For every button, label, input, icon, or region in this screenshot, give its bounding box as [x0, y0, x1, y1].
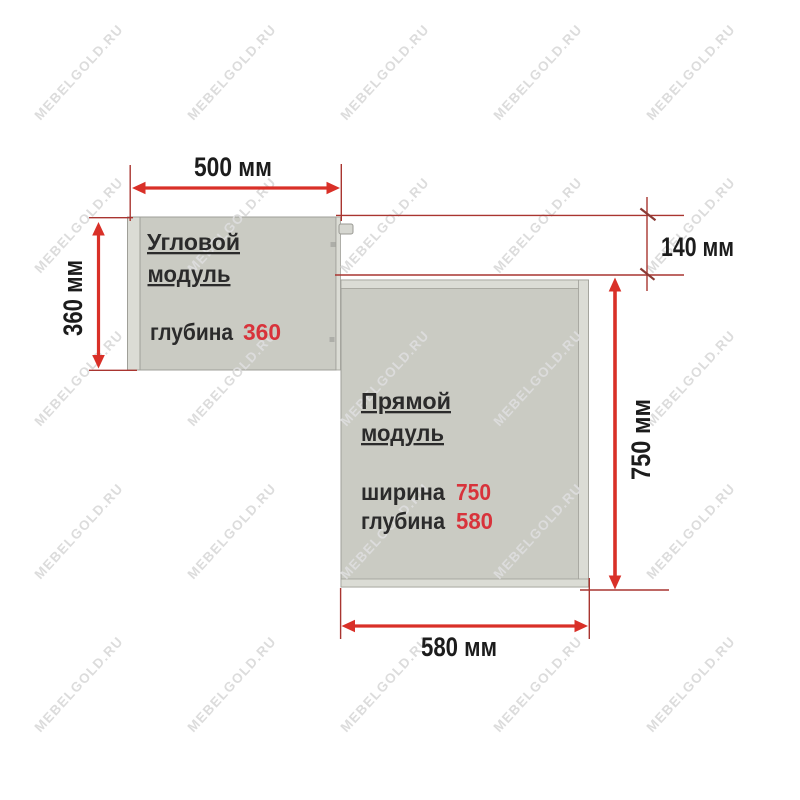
svg-text:580 мм: 580 мм: [421, 632, 497, 662]
svg-text:MEBELGOLD.RU: MEBELGOLD.RU: [643, 481, 738, 582]
svg-text:MEBELGOLD.RU: MEBELGOLD.RU: [31, 481, 126, 582]
svg-text:MEBELGOLD.RU: MEBELGOLD.RU: [31, 634, 126, 735]
svg-text:глубина: глубина: [361, 508, 445, 534]
svg-text:MEBELGOLD.RU: MEBELGOLD.RU: [184, 481, 279, 582]
svg-text:модуль: модуль: [148, 261, 231, 287]
svg-text:360 мм: 360 мм: [58, 260, 88, 336]
svg-text:MEBELGOLD.RU: MEBELGOLD.RU: [490, 175, 585, 276]
svg-text:750 мм: 750 мм: [626, 399, 656, 480]
svg-text:500 мм: 500 мм: [194, 152, 272, 182]
svg-text:MEBELGOLD.RU: MEBELGOLD.RU: [490, 22, 585, 123]
svg-text:MEBELGOLD.RU: MEBELGOLD.RU: [184, 634, 279, 735]
svg-text:MEBELGOLD.RU: MEBELGOLD.RU: [337, 22, 432, 123]
svg-text:ширина: ширина: [361, 479, 445, 505]
svg-text:MEBELGOLD.RU: MEBELGOLD.RU: [490, 634, 585, 735]
svg-text:MEBELGOLD.RU: MEBELGOLD.RU: [31, 22, 126, 123]
svg-text:750: 750: [456, 479, 491, 505]
svg-text:580: 580: [456, 508, 493, 534]
svg-text:Угловой: Угловой: [147, 229, 240, 255]
svg-text:360: 360: [243, 319, 281, 345]
svg-text:MEBELGOLD.RU: MEBELGOLD.RU: [337, 634, 432, 735]
svg-text:Прямой: Прямой: [361, 388, 451, 414]
svg-text:модуль: модуль: [361, 420, 444, 446]
svg-text:MEBELGOLD.RU: MEBELGOLD.RU: [184, 22, 279, 123]
svg-text:MEBELGOLD.RU: MEBELGOLD.RU: [643, 22, 738, 123]
svg-text:MEBELGOLD.RU: MEBELGOLD.RU: [643, 328, 738, 429]
svg-text:MEBELGOLD.RU: MEBELGOLD.RU: [643, 634, 738, 735]
svg-text:глубина: глубина: [150, 319, 233, 345]
svg-text:MEBELGOLD.RU: MEBELGOLD.RU: [31, 328, 126, 429]
svg-text:140 мм: 140 мм: [661, 232, 734, 262]
